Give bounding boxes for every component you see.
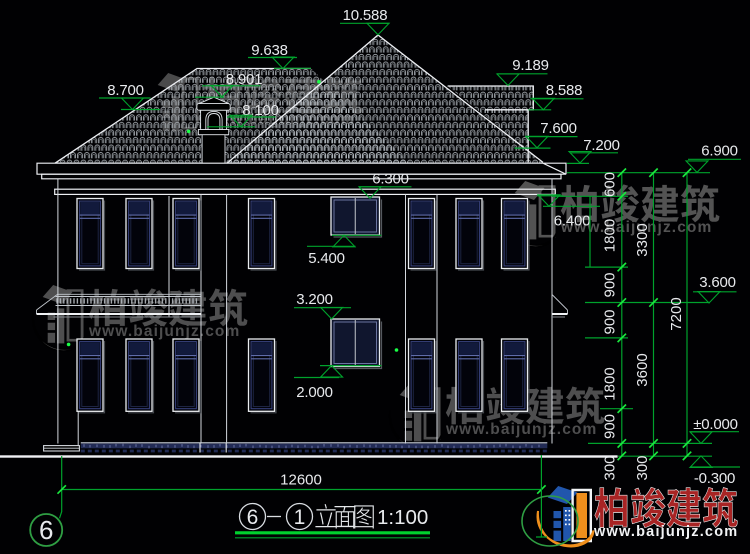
svg-text:www.baijunjz.com: www.baijunjz.com [445, 421, 597, 438]
svg-text:1:100: 1:100 [377, 506, 428, 529]
svg-text:900: 900 [602, 309, 619, 334]
svg-text:www.baijunjz.com: www.baijunjz.com [88, 323, 240, 340]
svg-text:1800: 1800 [602, 219, 619, 252]
svg-text:2.000: 2.000 [296, 384, 333, 401]
svg-text:6: 6 [39, 515, 53, 545]
svg-text:12600: 12600 [280, 472, 322, 489]
svg-text:300: 300 [634, 455, 651, 480]
svg-text:10.588: 10.588 [343, 7, 388, 24]
svg-text:-0.300: -0.300 [694, 470, 735, 487]
svg-text:6.400: 6.400 [554, 213, 591, 230]
svg-text:6: 6 [247, 506, 259, 529]
svg-text:1: 1 [294, 506, 306, 529]
svg-text:6.900: 6.900 [701, 143, 738, 160]
svg-text:3300: 3300 [634, 223, 651, 256]
svg-text:300: 300 [602, 455, 619, 480]
svg-text:7200: 7200 [668, 297, 685, 330]
svg-text:6.300: 6.300 [372, 171, 409, 188]
svg-text:900: 900 [602, 414, 619, 439]
svg-text:8.588: 8.588 [546, 82, 583, 99]
svg-text:5.400: 5.400 [308, 250, 345, 267]
svg-text:3.600: 3.600 [699, 274, 736, 291]
svg-text:900: 900 [602, 272, 619, 297]
svg-text:8.700: 8.700 [107, 82, 144, 99]
svg-text:±0.000: ±0.000 [693, 416, 738, 433]
svg-text:1800: 1800 [602, 367, 619, 400]
svg-text:3600: 3600 [634, 353, 651, 386]
svg-text:3.200: 3.200 [296, 291, 333, 308]
svg-text:7.600: 7.600 [540, 120, 577, 137]
svg-text:600: 600 [602, 172, 619, 197]
svg-text:www.baijunjz.com: www.baijunjz.com [593, 524, 738, 540]
svg-text:9.189: 9.189 [512, 57, 549, 74]
